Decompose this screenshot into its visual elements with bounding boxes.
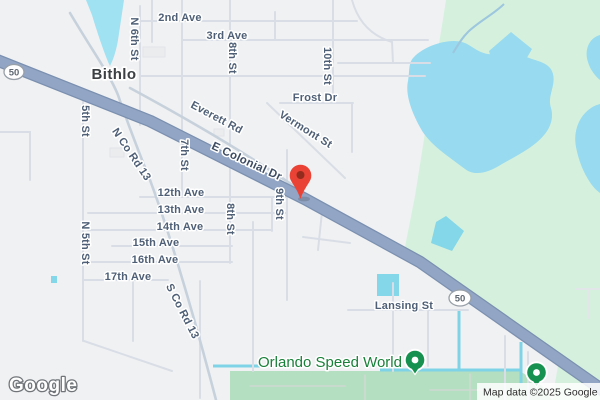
street-label-14th-ave: 14th Ave	[157, 221, 204, 233]
google-logo[interactable]: Google	[9, 375, 77, 396]
street-label-lansing-st: Lansing St	[375, 300, 433, 312]
street-label-frost-dr: Frost Dr	[293, 92, 338, 104]
map-canvas[interactable]: 50 50 2nd Ave 3rd Ave N 6th St 8th St 10…	[0, 0, 600, 400]
street-label-3rd-ave: 3rd Ave	[207, 30, 248, 42]
route-shield-50-label: 50	[455, 294, 466, 305]
town-label-bithlo: Bithlo	[92, 66, 137, 83]
street-label-n-6th-st: N 6th St	[128, 17, 140, 60]
route-shield-50: 50	[449, 290, 471, 306]
street-label-8th-st-north: 8th St	[226, 42, 238, 74]
street-label-n-5th-st: N 5th St	[79, 221, 91, 264]
map-viewport[interactable]: 50 50 2nd Ave 3rd Ave N 6th St 8th St 10…	[0, 0, 600, 400]
street-label-2nd-ave: 2nd Ave	[158, 12, 201, 24]
street-label-17th-ave: 17th Ave	[105, 271, 152, 283]
map-attribution[interactable]: Map data ©2025 Google	[477, 383, 600, 400]
street-label-8th-st-south: 8th St	[224, 203, 236, 235]
street-label-16th-ave: 16th Ave	[132, 254, 179, 266]
street-label-13th-ave: 13th Ave	[158, 204, 205, 216]
street-label-10th-st: 10th St	[321, 47, 333, 85]
street-label-15th-ave: 15th Ave	[133, 237, 180, 249]
route-shield-50-label: 50	[9, 68, 20, 79]
map-attribution-text[interactable]: Map data ©2025 Google	[483, 387, 598, 399]
route-shield-50: 50	[4, 65, 24, 80]
street-label-5th-st: 5th St	[79, 105, 91, 137]
street-label-7th-st: 7th St	[178, 139, 190, 171]
street-label-9th-st: 9th St	[273, 188, 285, 220]
street-label-12th-ave: 12th Ave	[158, 187, 205, 199]
poi-label-orlando-speed-world[interactable]: Orlando Speed World	[258, 354, 402, 371]
